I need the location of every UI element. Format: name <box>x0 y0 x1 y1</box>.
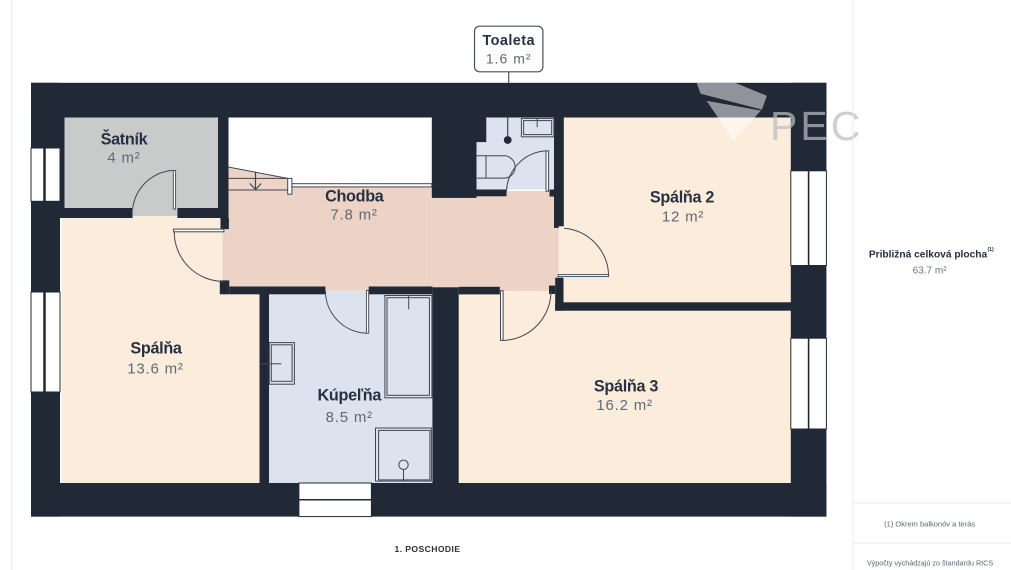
svg-text:Toaleta: Toaleta <box>482 33 535 49</box>
svg-text:63.7 m²: 63.7 m² <box>913 266 948 277</box>
svg-text:13.6 m²: 13.6 m² <box>127 361 183 378</box>
svg-text:Výpočty vychádzajú zo štandard: Výpočty vychádzajú zo štandardu RICS <box>867 559 993 568</box>
svg-text:1.6 m²: 1.6 m² <box>486 51 532 67</box>
svg-text:12 m²: 12 m² <box>662 209 704 226</box>
svg-text:16.2 m²: 16.2 m² <box>596 397 652 414</box>
svg-text:1. POSCHODIE: 1. POSCHODIE <box>395 544 461 554</box>
svg-text:4 m²: 4 m² <box>107 150 140 167</box>
svg-text:(1): (1) <box>988 247 994 253</box>
svg-text:(1) Okrem balkonóv a terás: (1) Okrem balkonóv a terás <box>884 520 975 529</box>
svg-text:Spálňa 3: Spálňa 3 <box>594 378 658 396</box>
svg-text:Približná celková plocha: Približná celková plocha <box>869 250 988 261</box>
svg-text:8.5 m²: 8.5 m² <box>326 409 373 426</box>
svg-text:Spálňa 2: Spálňa 2 <box>650 189 714 207</box>
svg-text:7.8 m²: 7.8 m² <box>330 207 377 224</box>
svg-text:PEC: PEC <box>770 103 863 149</box>
svg-text:Šatník: Šatník <box>101 130 149 149</box>
svg-text:Chodba: Chodba <box>325 188 385 206</box>
svg-text:Kúpeľňa: Kúpeľňa <box>318 387 383 405</box>
svg-text:Spálňa: Spálňa <box>130 340 183 358</box>
